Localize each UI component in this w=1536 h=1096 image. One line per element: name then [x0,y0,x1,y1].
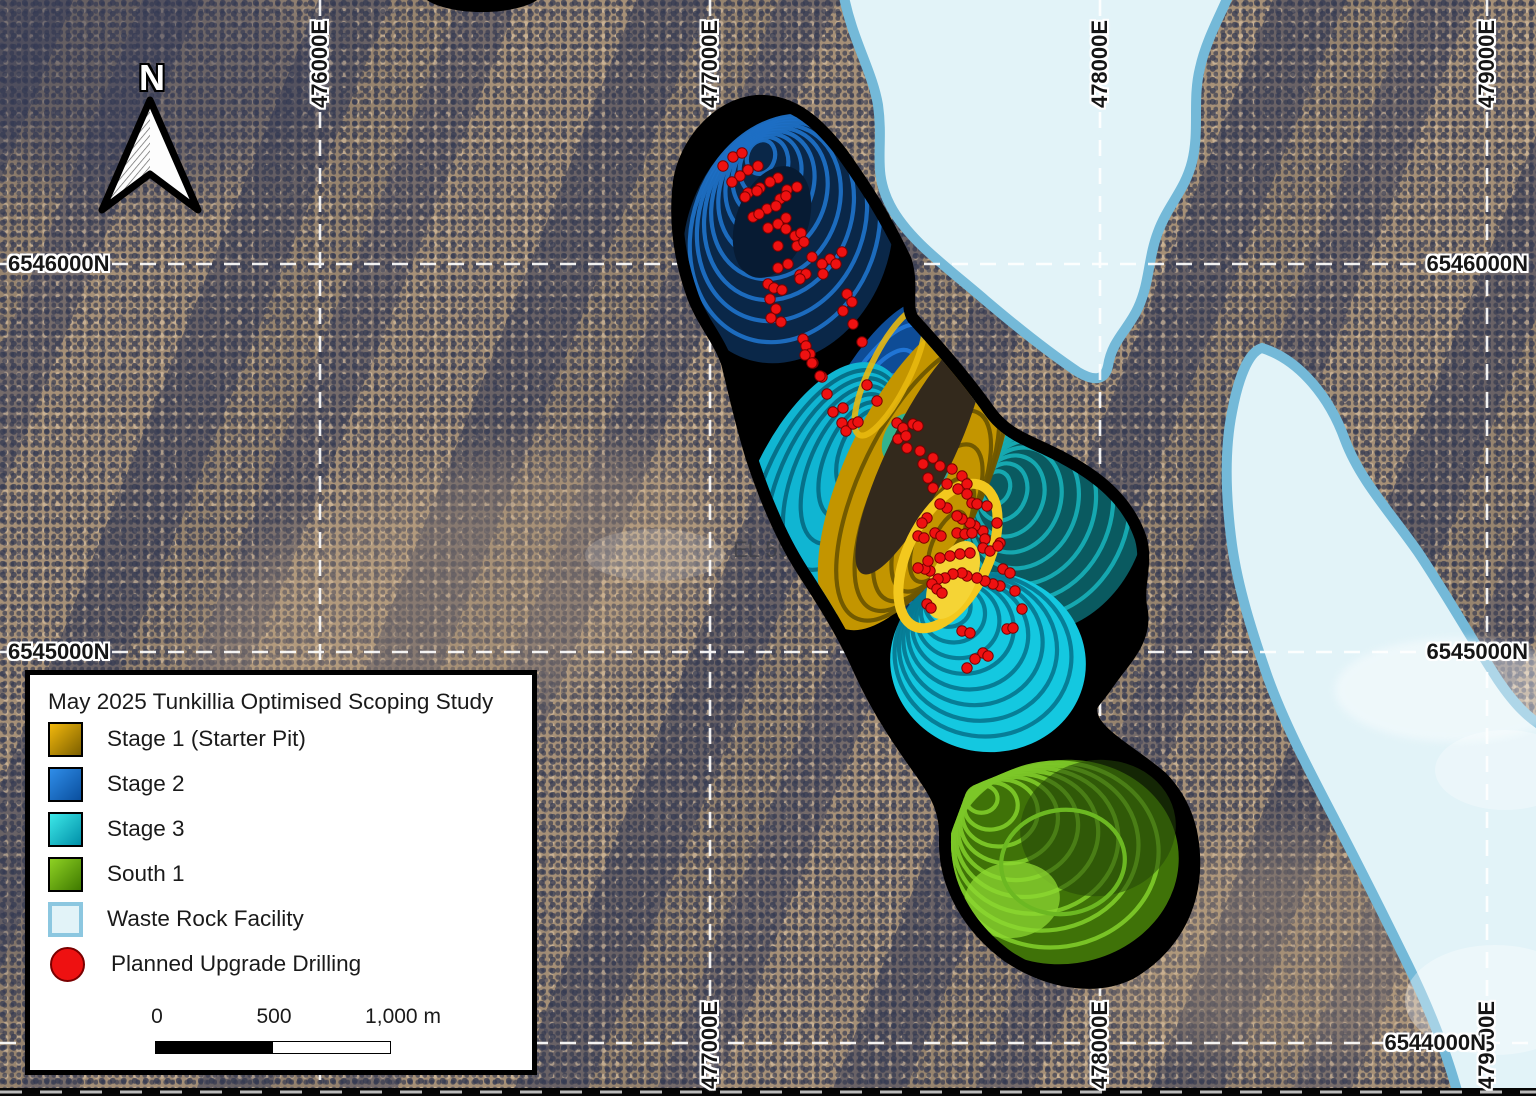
drill-hole-dot [918,459,928,469]
legend-item-drilling: Planned Upgrade Drilling [48,946,361,982]
drill-hole-dot [776,317,786,327]
drill-hole-dot [853,417,863,427]
drill-hole-dot [718,161,728,171]
northing-label-right: 6545000N [1426,639,1528,665]
drill-hole-dot [923,473,933,483]
drill-hole-dot [740,192,750,202]
drill-hole-dot [765,294,775,304]
drill-hole-dot [935,553,945,563]
drill-hole-dot [945,551,955,561]
drill-hole-dot [862,380,872,390]
easting-label-bottom: 478000E [1087,1001,1113,1089]
stage2-swatch-icon [48,767,83,802]
easting-label-top: 477000E [697,20,723,108]
legend-title: May 2025 Tunkillia Optimised Scoping Stu… [48,689,493,715]
legend-item-label: Stage 3 [107,816,185,842]
drill-hole-dot [838,306,848,316]
drill-hole-dot [807,252,817,262]
drill-hole-dot [947,464,957,474]
legend-item-stage2: Stage 2 [48,766,185,802]
easting-label-bottom: 477000E [697,1001,723,1089]
map-figure: EL 590 N 476000E477000E477000E478000E478… [0,0,1536,1096]
drill-hole-dot [935,499,945,509]
drill-hole-dot [936,531,946,541]
legend-item-label: Waste Rock Facility [107,906,304,932]
legend-item-stage1: Stage 1 (Starter Pit) [48,721,306,757]
drill-hole-dot [919,533,929,543]
drill-hole-dot [771,201,781,211]
waste-rock-swatch-icon [48,902,83,937]
drill-hole-dot [838,403,848,413]
drill-hole-dot [795,274,805,284]
drill-hole-dot [937,588,947,598]
drill-hole-dot [818,269,828,279]
scale-tick-0: 0 [151,1005,163,1029]
drill-hole-dot [928,483,938,493]
drill-hole-dot [962,663,972,673]
drill-hole-dot [913,563,923,573]
scale-tick-1000: 1,000 m [365,1005,441,1029]
legend-item-label: Stage 2 [107,771,185,797]
drill-hole-dot [754,209,764,219]
drill-hole-dot [982,501,992,511]
easting-label-top: 478000E [1087,20,1113,108]
drill-hole-dot [792,182,802,192]
drill-hole-dot [952,511,962,521]
north-arrow-icon [88,92,218,222]
drill-hole-dot [942,479,952,489]
drill-hole-dot [992,518,1002,528]
drill-hole-dot [902,443,912,453]
drill-hole-dot [837,247,847,257]
legend-item-label: Planned Upgrade Drilling [111,951,361,977]
drill-hole-dot [773,241,783,251]
drill-hole-dot [965,628,975,638]
south1-swatch-icon [48,857,83,892]
drill-hole-dot [972,499,982,509]
stage1-swatch-icon [48,722,83,757]
legend-item-stage3: Stage 3 [48,811,185,847]
drill-hole-dot [828,407,838,417]
northing-label-right: 6546000N [1426,251,1528,277]
scale-bar-filled-half [156,1042,273,1053]
drill-hole-dot [773,263,783,273]
scale-tick-500: 500 [256,1005,291,1029]
drill-hole-dot [872,396,882,406]
legend-item-label: Stage 1 (Starter Pit) [107,726,306,752]
stage3-swatch-icon [48,812,83,847]
drill-hole-dot [857,337,867,347]
drill-hole-dot [815,371,825,381]
northing-label-left: 6546000N [8,251,110,277]
drill-hole-dot [972,573,982,583]
drill-hole-dot [831,259,841,269]
drill-hole-dot [965,548,975,558]
drill-hole-dot [915,446,925,456]
drill-hole-dot [913,421,923,431]
drill-dot-icon [50,947,85,982]
drill-hole-dot [935,461,945,471]
drill-hole-dot [848,319,858,329]
drill-hole-dot [737,148,747,158]
drill-hole-dot [1010,586,1020,596]
drill-hole-dot [753,161,763,171]
drill-hole-dot [1017,604,1027,614]
drill-hole-dot [993,541,1003,551]
drill-hole-dot [783,259,793,269]
legend-panel: May 2025 Tunkillia Optimised Scoping Stu… [25,670,537,1075]
drill-hole-dot [955,549,965,559]
drill-hole-dot [727,177,737,187]
top-edge-blob [420,0,544,12]
drill-hole-dot [799,237,809,247]
drill-hole-dot [901,431,911,441]
northing-label-right: 6544000N [1384,1030,1486,1056]
drill-hole-dot [777,285,787,295]
drill-hole-dot [763,223,773,233]
drill-hole-dot [970,654,980,664]
drill-hole-dot [817,259,827,269]
drill-hole-dot [923,556,933,566]
legend-item-waste-rock: Waste Rock Facility [48,901,304,937]
drill-hole-dot [765,177,775,187]
drill-hole-dot [917,518,927,528]
drill-hole-dot [781,224,791,234]
drill-hole-dot [983,651,993,661]
drill-hole-dot [967,528,977,538]
easting-label-top: 476000E [307,20,333,108]
drill-hole-dot [807,358,817,368]
drill-hole-dot [847,297,857,307]
legend-item-label: South 1 [107,861,185,887]
drill-hole-dot [752,186,762,196]
easting-label-top: 479000E [1474,20,1500,108]
drill-hole-dot [781,191,791,201]
scale-bar-track [155,1041,391,1054]
drill-hole-dot [1008,623,1018,633]
drill-hole-dot [926,603,936,613]
legend-item-south1: South 1 [48,856,185,892]
northing-label-left: 6545000N [8,639,110,665]
drill-hole-dot [766,313,776,323]
drill-hole-dot [822,389,832,399]
drill-hole-dot [1005,568,1015,578]
